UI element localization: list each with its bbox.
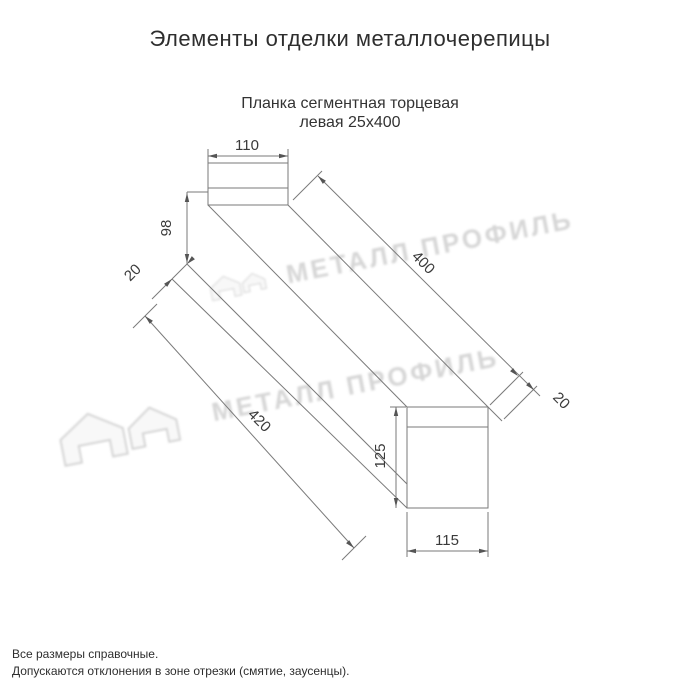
dim-length-top-label: 400 — [408, 248, 438, 278]
dimension-length-top: 400 20 — [293, 171, 573, 419]
dimension-left-fold: 20 — [121, 256, 195, 299]
note-line2: Допускаются отклонения в зоне отрезки (с… — [12, 663, 349, 680]
dimension-top-width: 110 — [208, 137, 288, 163]
dim-right-fold-label: 20 — [549, 389, 573, 413]
dim-left-fold-label: 20 — [121, 261, 145, 285]
dim-right-width-label: 115 — [435, 532, 459, 549]
note-line1: Все размеры справочные. — [12, 646, 349, 663]
dimension-length-bottom: 420 — [133, 304, 366, 560]
drawing-subtitle: Планка сегментная торцевая левая 25х400 — [0, 94, 700, 132]
dimension-right-height: 125 — [372, 407, 406, 508]
dim-right-height-label: 125 — [372, 443, 389, 468]
part-outline — [172, 163, 502, 508]
drawing-subtitle-line2: левая 25х400 — [0, 113, 700, 132]
dim-top-width-label: 110 — [235, 137, 259, 154]
footer-notes: Все размеры справочные. Допускаются откл… — [12, 646, 349, 680]
dim-left-height-label: 98 — [158, 220, 175, 237]
drawing-subtitle-line1: Планка сегментная торцевая — [0, 94, 700, 113]
dimension-right-width: 115 — [407, 512, 488, 557]
dimension-left-height: 98 — [158, 193, 189, 263]
page-title: Элементы отделки металлочерепицы — [0, 26, 700, 52]
